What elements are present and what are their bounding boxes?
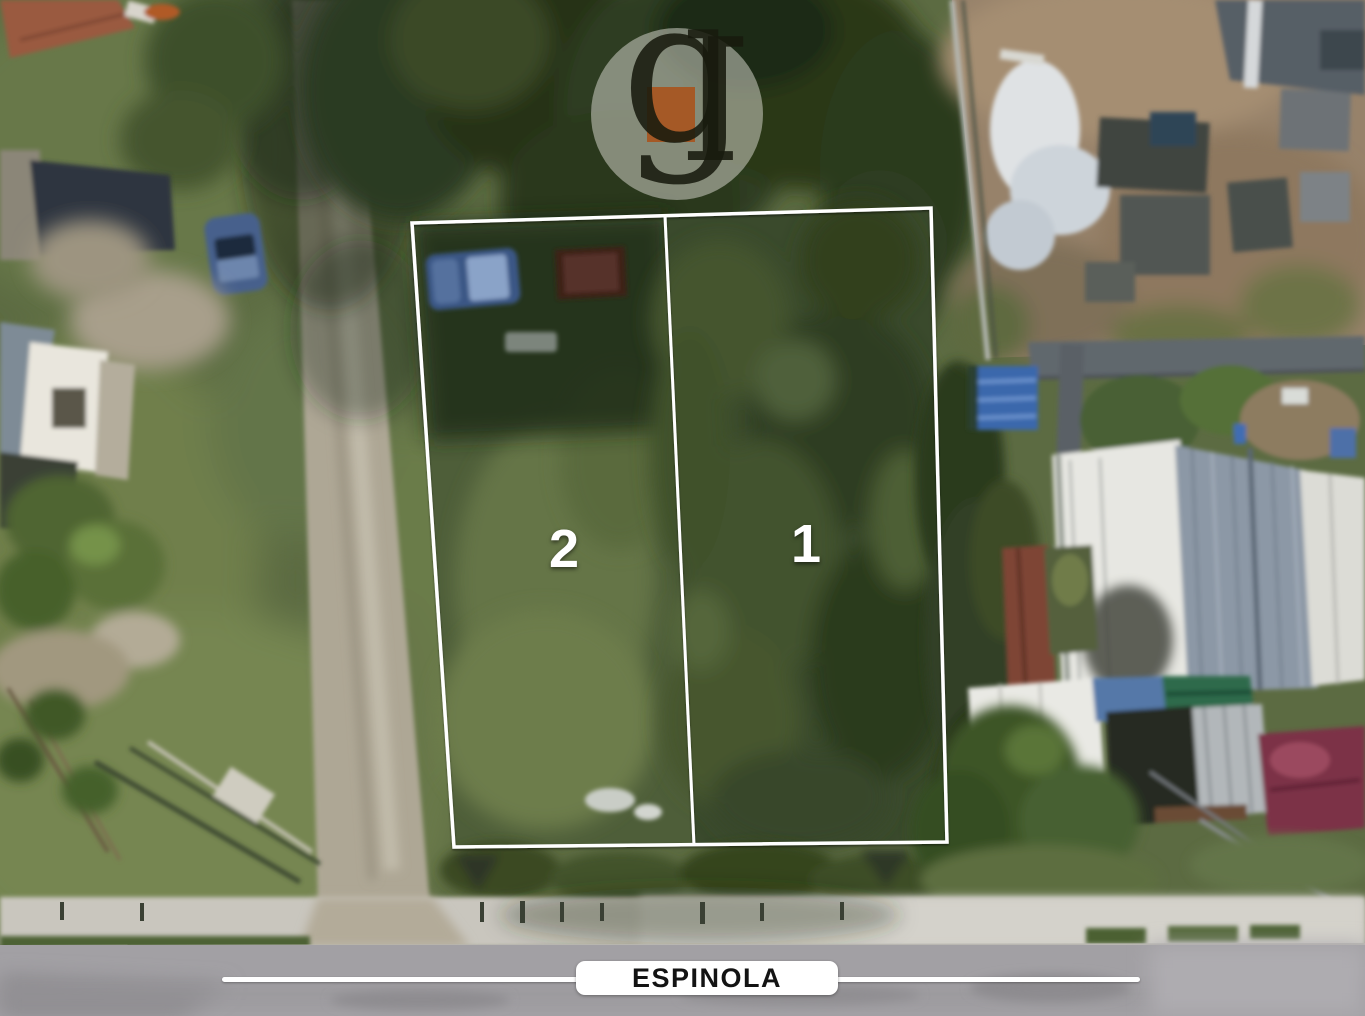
watermark-letter-l: l <box>683 0 738 201</box>
watermark-monogram: g l <box>591 28 763 228</box>
lot-2-label: 2 <box>524 522 604 576</box>
lot-1-label: 1 <box>766 517 846 571</box>
street-name-text: ESPINOLA <box>632 963 782 994</box>
construction-yard <box>940 0 1365 365</box>
aerial-lot-photo: 2 1 g l ESPINOLA <box>0 0 1365 1016</box>
street-name-plate: ESPINOLA <box>576 961 838 995</box>
brand-watermark: g l <box>591 28 763 200</box>
